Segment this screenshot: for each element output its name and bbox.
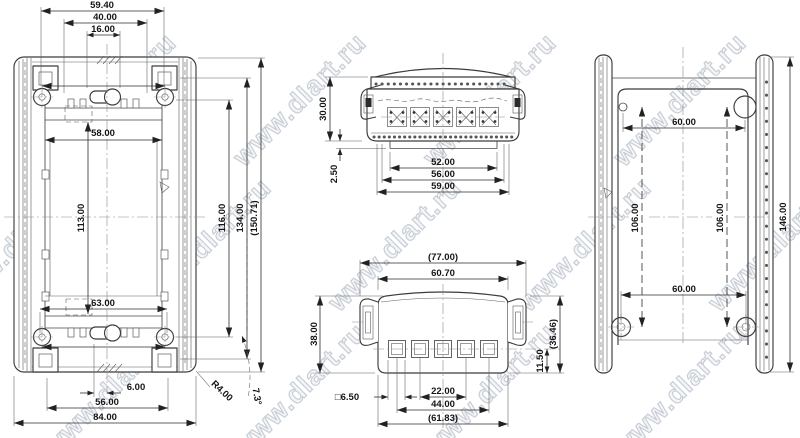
dim-top-depth: 30.00 bbox=[318, 97, 329, 121]
dim-front-bottom-width: 56.00 bbox=[95, 397, 119, 408]
side-rail-left bbox=[595, 55, 612, 373]
dim-front-top-outer: 59.40 bbox=[90, 0, 114, 11]
front-view-geometry bbox=[4, 44, 207, 394]
dim-bottom-pitch-two: 22.00 bbox=[431, 386, 455, 397]
dim-bottom-overall-width: (77.00) bbox=[428, 252, 458, 263]
dim-bottom-pitch-four: 44.00 bbox=[431, 399, 455, 410]
bottom-view-geometry bbox=[352, 284, 560, 430]
dim-top-w-inner: 52.00 bbox=[431, 157, 455, 168]
side-hole-top-left bbox=[619, 103, 627, 111]
dim-side-bottom-span: 60.00 bbox=[672, 284, 696, 295]
dim-front-height-outer: 134.00 bbox=[235, 203, 246, 232]
dim-front-height-overall: (150.71) bbox=[249, 200, 260, 235]
dim-front-upper-span: 58.00 bbox=[91, 128, 115, 139]
dim-bottom-lip: 11.50 bbox=[535, 349, 546, 372]
dim-side-hole-span-right: 106.00 bbox=[715, 203, 726, 232]
dim-bottom-depth-ref: (36.46) bbox=[548, 319, 559, 349]
dim-front-top-mid: 40.00 bbox=[93, 12, 117, 23]
dim-front-corner-radius: R4.00 bbox=[209, 379, 235, 404]
dim-bottom-span-ref: (61.83) bbox=[428, 413, 458, 424]
side-rail-right bbox=[756, 55, 773, 373]
dim-front-lower-span: 63.00 bbox=[91, 298, 115, 309]
side-view-geometry bbox=[588, 47, 773, 373]
dim-front-top-inner: 16.00 bbox=[91, 24, 115, 35]
dim-front-bottom-offset: 6.00 bbox=[127, 382, 146, 393]
dim-front-inner-height: 113.00 bbox=[76, 204, 87, 233]
dim-top-lip: 2.50 bbox=[329, 165, 340, 184]
dim-top-w-outer: 59.00 bbox=[431, 181, 455, 192]
dim-side-height-overall: 146.00 bbox=[778, 202, 789, 231]
side-hole-top-right bbox=[734, 96, 756, 118]
technical-drawing-svg: 59.40 40.00 16.00 58.00 113.00 116.00 13… bbox=[0, 0, 800, 438]
dim-bottom-hole-size: □6.50 bbox=[335, 392, 359, 403]
dim-front-overall-width: 84.00 bbox=[93, 412, 117, 423]
bottom-view: (77.00) 60.70 38.00 □6.50 22.00 44.00 (6… bbox=[309, 252, 564, 430]
side-view: 60.00 60.00 106.00 106.00 146.00 bbox=[588, 47, 794, 373]
dim-front-height-mid: 116.00 bbox=[217, 204, 228, 233]
dim-top-w-mid: 56.00 bbox=[431, 169, 455, 180]
dim-side-top-span: 60.00 bbox=[672, 117, 696, 128]
top-view: 30.00 2.50 52.00 56.00 59.00 bbox=[318, 53, 525, 200]
dim-front-draft-angle: 7.3° bbox=[250, 387, 264, 406]
dim-bottom-depth: 38.00 bbox=[309, 322, 320, 346]
dim-side-hole-span-left: 106.00 bbox=[630, 203, 641, 232]
front-view: 59.40 40.00 16.00 58.00 113.00 116.00 13… bbox=[4, 0, 265, 426]
dim-bottom-body-width: 60.70 bbox=[431, 268, 455, 279]
drawing-canvas: www.dlart.ru www.dlart.ru www.dlart.ru w… bbox=[0, 0, 800, 438]
